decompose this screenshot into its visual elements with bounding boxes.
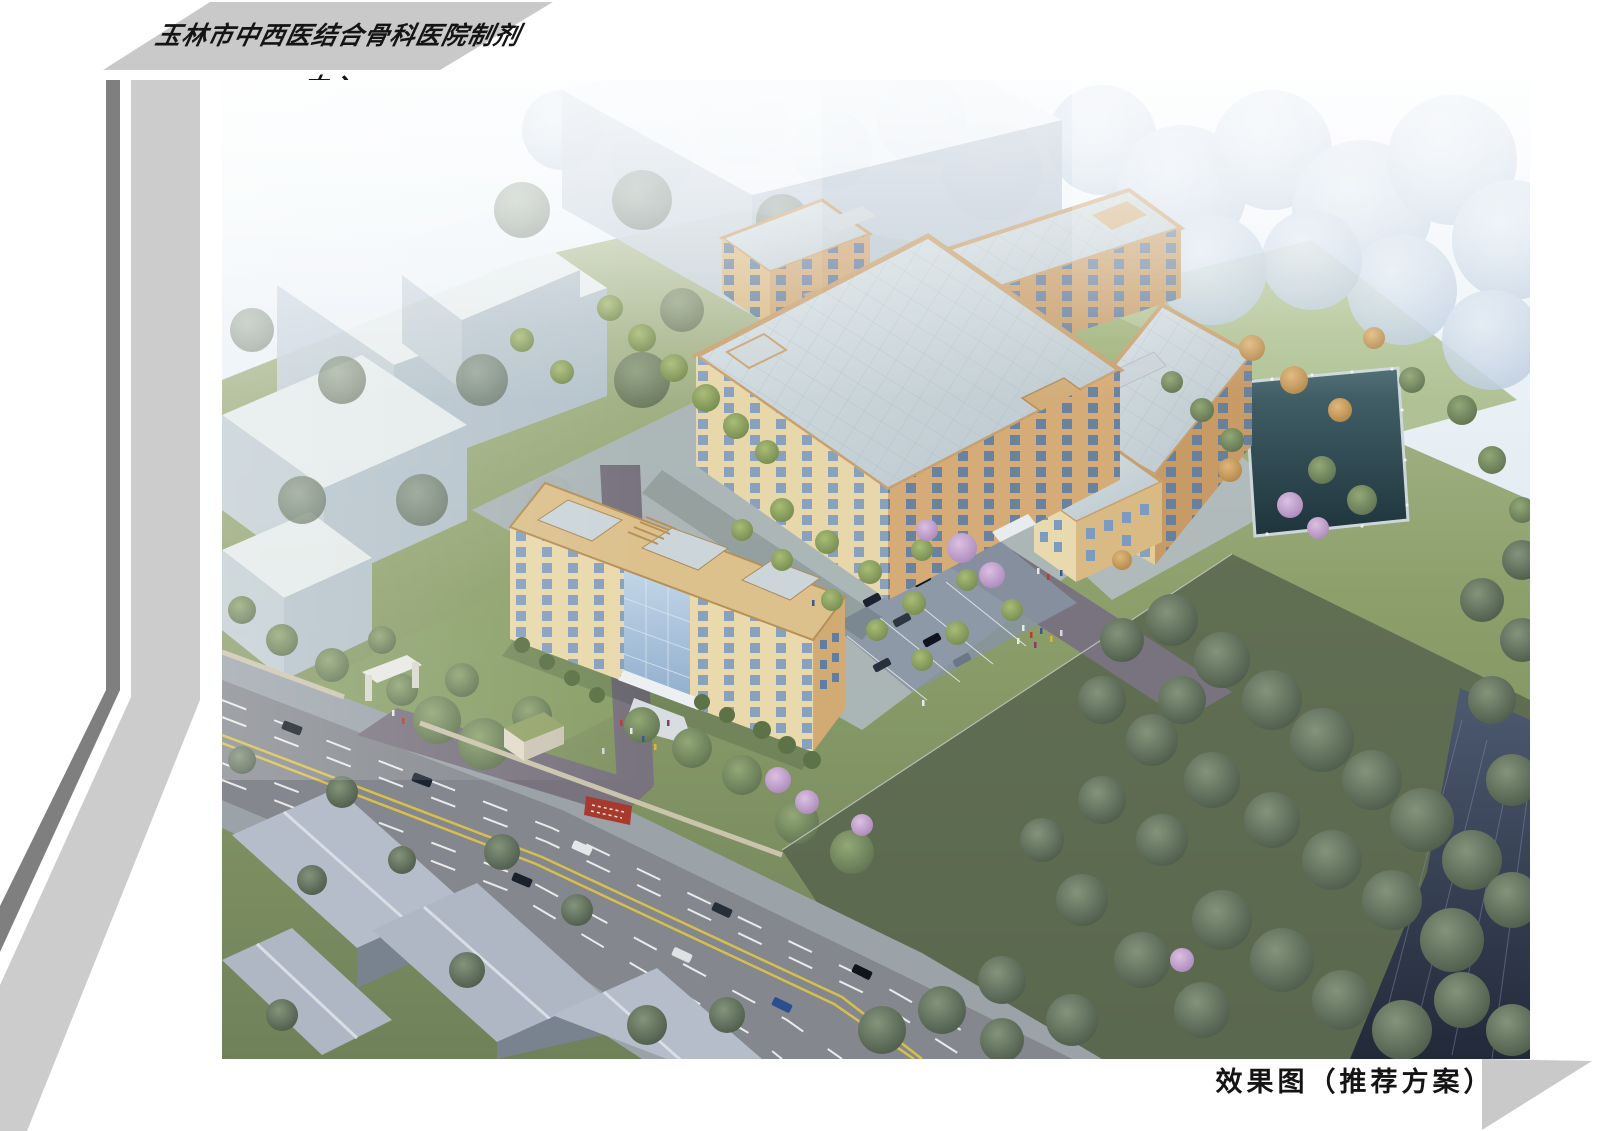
page-title: 玉林市中西医结合骨科医院制剂中心 [142, 10, 533, 62]
caption: 效果图（推荐方案） [1180, 1060, 1530, 1099]
presentation-page: 玉林市中西医结合骨科医院制剂中心 [0, 0, 1600, 1131]
rendering-scene [222, 80, 1530, 1059]
architectural-rendering [222, 80, 1530, 1059]
left-bar-light [0, 80, 200, 1131]
